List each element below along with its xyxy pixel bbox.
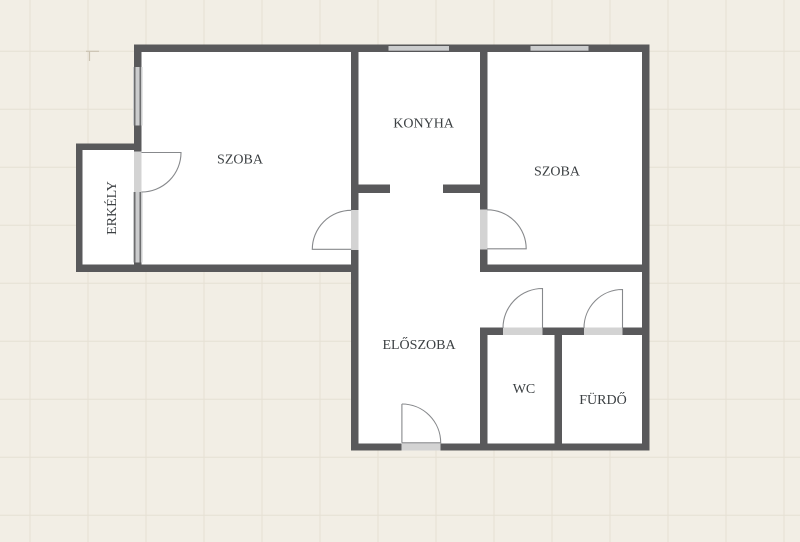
svg-text:FÜRDŐ: FÜRDŐ: [579, 391, 626, 408]
svg-text:ERKÉLY: ERKÉLY: [103, 181, 120, 235]
svg-text:WC: WC: [513, 382, 536, 397]
svg-text:SZOBA: SZOBA: [217, 152, 264, 167]
svg-text:ELŐSZOBA: ELŐSZOBA: [382, 336, 456, 353]
svg-text:KONYHA: KONYHA: [393, 116, 455, 131]
svg-text:SZOBA: SZOBA: [534, 164, 581, 179]
